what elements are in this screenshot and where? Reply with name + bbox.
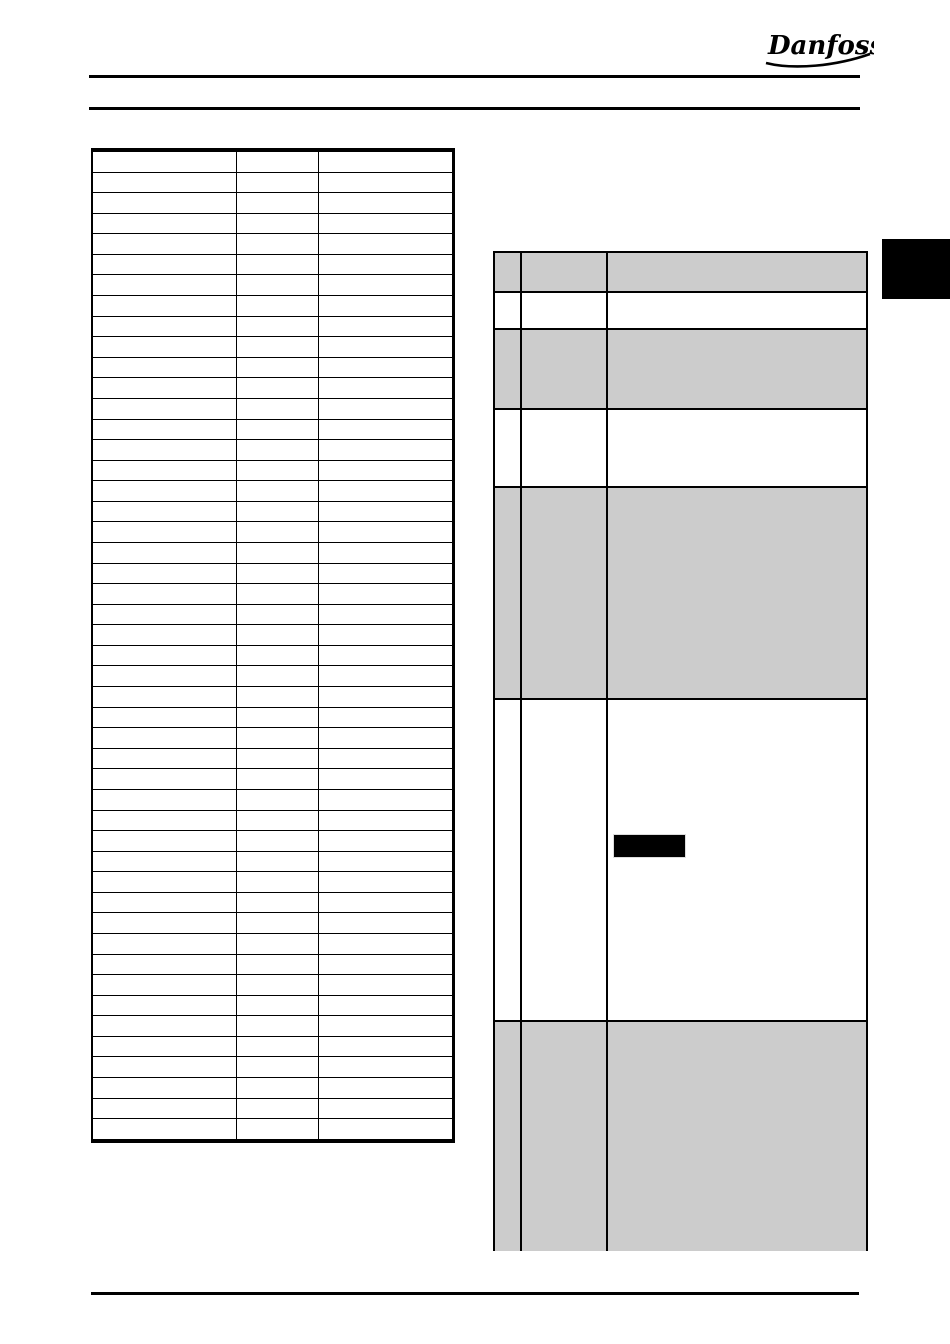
- table-row: [93, 872, 452, 893]
- table-cell: [237, 872, 319, 892]
- table-cell: [237, 296, 319, 316]
- table-row: [93, 996, 452, 1017]
- table-cell: [319, 1119, 452, 1139]
- table-cell: [237, 337, 319, 357]
- table-cell: [93, 625, 237, 645]
- table-cell: [93, 440, 237, 460]
- table-row: [495, 330, 866, 410]
- table-cell: [237, 769, 319, 789]
- table-row: [93, 543, 452, 564]
- table-cell: [319, 769, 452, 789]
- table-cell: [237, 625, 319, 645]
- table-row: [93, 913, 452, 934]
- footer-rule: [91, 1292, 859, 1295]
- table-row: [93, 234, 452, 255]
- table-cell: [319, 461, 452, 481]
- table-cell: [319, 173, 452, 193]
- table-cell: [237, 790, 319, 810]
- table-cell: [319, 296, 452, 316]
- table-cell: [319, 152, 452, 172]
- table-cell: [93, 152, 237, 172]
- table-cell: [93, 337, 237, 357]
- table-row: [93, 440, 452, 461]
- table-row: [93, 152, 452, 173]
- table-cell: [93, 913, 237, 933]
- table-cell: [319, 872, 452, 892]
- table-row: [93, 420, 452, 441]
- table-cell: [495, 488, 522, 698]
- table-cell: [237, 913, 319, 933]
- redacted-black-box: [614, 835, 685, 857]
- table-row: [93, 564, 452, 585]
- table-cell: [319, 605, 452, 625]
- table-cell: [522, 293, 608, 328]
- left-data-table: [91, 148, 455, 1143]
- table-row: [93, 790, 452, 811]
- table-cell: [93, 522, 237, 542]
- table-cell: [93, 481, 237, 501]
- table-cell: [237, 173, 319, 193]
- table-row: [93, 1016, 452, 1037]
- table-cell: [319, 399, 452, 419]
- table-cell: [93, 1119, 237, 1139]
- table-row: [93, 708, 452, 729]
- table-row: [495, 410, 866, 488]
- table-row: [93, 1037, 452, 1058]
- table-cell: [319, 1078, 452, 1098]
- table-row: [93, 852, 452, 873]
- table-row: [93, 893, 452, 914]
- table-row: [93, 728, 452, 749]
- table-row: [93, 769, 452, 790]
- table-cell: [319, 481, 452, 501]
- table-cell: [522, 330, 608, 408]
- table-cell: [237, 852, 319, 872]
- table-cell: [93, 769, 237, 789]
- table-row: [93, 214, 452, 235]
- table-cell: [319, 913, 452, 933]
- table-cell: [93, 584, 237, 604]
- table-cell: [93, 358, 237, 378]
- table-cell: [319, 522, 452, 542]
- table-row: [93, 461, 452, 482]
- table-row: [495, 293, 866, 330]
- table-cell: [319, 708, 452, 728]
- table-cell: [608, 293, 866, 328]
- table-cell: [93, 975, 237, 995]
- table-cell: [522, 700, 608, 1020]
- table-cell: [608, 253, 866, 291]
- table-cell: [319, 275, 452, 295]
- table-cell: [319, 255, 452, 275]
- table-cell: [237, 420, 319, 440]
- table-cell: [319, 584, 452, 604]
- table-cell: [237, 666, 319, 686]
- table-cell: [319, 893, 452, 913]
- table-row: [93, 955, 452, 976]
- table-cell: [93, 234, 237, 254]
- table-cell: [319, 358, 452, 378]
- table-cell: [319, 955, 452, 975]
- table-cell: [93, 564, 237, 584]
- table-cell: [237, 317, 319, 337]
- table-cell: [93, 502, 237, 522]
- table-cell: [495, 330, 522, 408]
- table-cell: [93, 811, 237, 831]
- table-row: [93, 1099, 452, 1120]
- table-cell: [608, 1022, 866, 1251]
- table-cell: [237, 646, 319, 666]
- table-cell: [495, 1022, 522, 1251]
- table-cell: [319, 625, 452, 645]
- table-row: [93, 749, 452, 770]
- table-cell: [93, 728, 237, 748]
- table-cell: [237, 1016, 319, 1036]
- table-cell: [319, 666, 452, 686]
- table-row: [93, 934, 452, 955]
- table-cell: [237, 996, 319, 1016]
- table-row: [93, 1119, 452, 1139]
- table-cell: [319, 749, 452, 769]
- table-cell: [237, 399, 319, 419]
- table-cell: [93, 955, 237, 975]
- table-row: [93, 378, 452, 399]
- table-cell: [319, 790, 452, 810]
- table-cell: [93, 666, 237, 686]
- table-cell: [93, 996, 237, 1016]
- table-row: [93, 1057, 452, 1078]
- table-cell: [93, 831, 237, 851]
- table-cell: [237, 1037, 319, 1057]
- table-cell: [319, 687, 452, 707]
- table-cell: [237, 358, 319, 378]
- table-cell: [319, 996, 452, 1016]
- table-cell: [237, 440, 319, 460]
- table-cell: [319, 1099, 452, 1119]
- table-cell: [319, 234, 452, 254]
- table-cell: [237, 708, 319, 728]
- table-row: [93, 687, 452, 708]
- table-cell: [319, 1016, 452, 1036]
- table-row: [93, 666, 452, 687]
- table-cell: [93, 214, 237, 234]
- table-cell: [93, 749, 237, 769]
- table-cell: [93, 646, 237, 666]
- table-cell: [93, 317, 237, 337]
- table-row: [93, 625, 452, 646]
- table-row: [93, 275, 452, 296]
- table-cell: [237, 275, 319, 295]
- table-cell: [93, 461, 237, 481]
- table-cell: [237, 255, 319, 275]
- header-rule-bottom: [89, 107, 860, 110]
- table-cell: [93, 399, 237, 419]
- table-cell: [522, 410, 608, 486]
- table-cell: [319, 502, 452, 522]
- table-cell: [237, 831, 319, 851]
- danfoss-logo-art: Danfoss: [764, 27, 874, 71]
- table-cell: [237, 749, 319, 769]
- table-row: [93, 337, 452, 358]
- table-cell: [237, 152, 319, 172]
- table-cell: [237, 811, 319, 831]
- table-cell: [93, 790, 237, 810]
- table-cell: [237, 1057, 319, 1077]
- table-row: [93, 502, 452, 523]
- table-cell: [237, 584, 319, 604]
- table-cell: [93, 255, 237, 275]
- table-cell: [237, 461, 319, 481]
- table-cell: [319, 646, 452, 666]
- table-cell: [237, 522, 319, 542]
- section-tab-marker: [882, 239, 950, 299]
- table-cell: [237, 605, 319, 625]
- table-cell: [93, 1057, 237, 1077]
- table-cell: [319, 728, 452, 748]
- table-cell: [93, 1037, 237, 1057]
- table-row: [93, 831, 452, 852]
- table-cell: [93, 1016, 237, 1036]
- table-cell: [93, 420, 237, 440]
- table-cell: [608, 488, 866, 698]
- table-cell: [237, 1119, 319, 1139]
- table-row: [495, 253, 866, 293]
- table-cell: [237, 481, 319, 501]
- table-row: [93, 173, 452, 194]
- table-cell: [522, 1022, 608, 1251]
- table-cell: [237, 502, 319, 522]
- table-cell: [93, 687, 237, 707]
- table-cell: [93, 605, 237, 625]
- table-row: [93, 481, 452, 502]
- table-row: [93, 584, 452, 605]
- table-cell: [237, 193, 319, 213]
- table-cell: [319, 378, 452, 398]
- danfoss-logo: Danfoss: [764, 27, 874, 71]
- table-cell: [237, 543, 319, 563]
- table-row: [93, 296, 452, 317]
- table-cell: [319, 934, 452, 954]
- table-row: [93, 522, 452, 543]
- table-cell: [237, 1078, 319, 1098]
- table-cell: [319, 543, 452, 563]
- table-cell: [93, 543, 237, 563]
- table-cell: [319, 564, 452, 584]
- table-row: [93, 399, 452, 420]
- table-row: [93, 255, 452, 276]
- table-cell: [237, 687, 319, 707]
- table-cell: [608, 330, 866, 408]
- table-cell: [93, 872, 237, 892]
- table-row: [93, 1078, 452, 1099]
- table-cell: [237, 234, 319, 254]
- table-row: [93, 358, 452, 379]
- table-cell: [319, 317, 452, 337]
- table-cell: [319, 214, 452, 234]
- table-row: [93, 317, 452, 338]
- table-row: [495, 488, 866, 700]
- table-cell: [495, 293, 522, 328]
- table-cell: [319, 831, 452, 851]
- table-cell: [319, 337, 452, 357]
- table-cell: [93, 708, 237, 728]
- table-cell: [522, 488, 608, 698]
- table-cell: [93, 173, 237, 193]
- table-row: [93, 193, 452, 214]
- table-cell: [319, 811, 452, 831]
- table-cell: [237, 564, 319, 584]
- table-cell: [237, 934, 319, 954]
- table-cell: [495, 253, 522, 291]
- table-cell: [237, 1099, 319, 1119]
- table-cell: [93, 296, 237, 316]
- table-row: [495, 700, 866, 1022]
- table-cell: [608, 410, 866, 486]
- document-page: Danfoss: [0, 0, 950, 1344]
- table-row: [93, 811, 452, 832]
- table-cell: [93, 1099, 237, 1119]
- table-cell: [319, 193, 452, 213]
- table-cell: [522, 253, 608, 291]
- table-row: [93, 646, 452, 667]
- table-cell: [319, 975, 452, 995]
- table-cell: [237, 975, 319, 995]
- table-row: [93, 605, 452, 626]
- table-cell: [93, 378, 237, 398]
- right-shaded-table: [493, 251, 868, 1251]
- table-cell: [319, 420, 452, 440]
- table-cell: [93, 1078, 237, 1098]
- table-cell: [93, 275, 237, 295]
- table-row: [495, 1022, 866, 1251]
- table-cell: [608, 700, 866, 1020]
- table-cell: [237, 955, 319, 975]
- table-cell: [319, 852, 452, 872]
- table-cell: [93, 852, 237, 872]
- table-cell: [93, 934, 237, 954]
- table-cell: [237, 378, 319, 398]
- table-cell: [319, 1057, 452, 1077]
- table-cell: [237, 893, 319, 913]
- table-cell: [93, 193, 237, 213]
- header-rule-top: [89, 75, 860, 78]
- table-cell: [93, 893, 237, 913]
- table-cell: [237, 214, 319, 234]
- table-row: [93, 975, 452, 996]
- table-cell: [495, 410, 522, 486]
- table-cell: [495, 700, 522, 1020]
- table-cell: [319, 1037, 452, 1057]
- table-cell: [319, 440, 452, 460]
- table-cell: [237, 728, 319, 748]
